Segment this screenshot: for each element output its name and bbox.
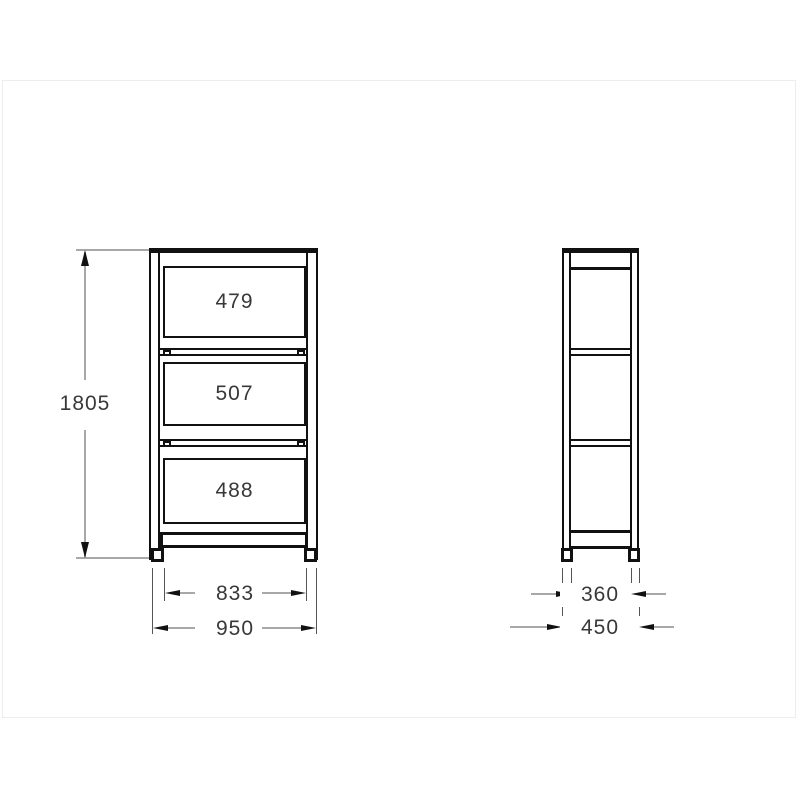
front-shelf-opening-1: 479 bbox=[163, 266, 306, 338]
front-top-beam bbox=[149, 248, 318, 253]
overall-width-dim-label: 950 bbox=[195, 617, 275, 641]
front-shelf-beam-1-right-clip bbox=[297, 350, 305, 356]
front-shelf-opening-3: 488 bbox=[163, 458, 306, 524]
front-shelf-beam-2 bbox=[160, 439, 308, 447]
drawing-canvas: 479 507 488 18 bbox=[0, 0, 800, 800]
overall-width-arrow-right-icon bbox=[301, 625, 316, 631]
shelf-gap-label-1: 479 bbox=[215, 290, 253, 314]
overall-width-arrow-left-icon bbox=[153, 625, 168, 631]
shelf-gap-label-3: 488 bbox=[215, 479, 253, 503]
height-arrow-down-icon bbox=[81, 542, 89, 558]
overall-depth-tail-left bbox=[510, 626, 547, 628]
inner-depth-tail-left bbox=[531, 593, 556, 595]
width-extension-inner-right bbox=[306, 568, 307, 601]
front-shelf-beam-2-right-clip bbox=[297, 441, 305, 447]
inner-depth-dim-label: 360 bbox=[560, 583, 640, 607]
front-left-foot bbox=[151, 548, 164, 562]
inner-depth-arrow-right-icon bbox=[631, 591, 646, 597]
side-rear-post bbox=[630, 248, 639, 560]
height-dim-line-lower bbox=[84, 430, 86, 558]
side-top-beam bbox=[562, 248, 639, 253]
inner-width-tail-right bbox=[262, 592, 291, 594]
side-front-foot bbox=[561, 548, 573, 562]
side-front-post bbox=[562, 248, 571, 560]
front-shelf-beam-2-left-clip bbox=[163, 441, 171, 447]
overall-depth-arrow-right-icon bbox=[639, 624, 654, 630]
inner-width-arrow-left-icon bbox=[165, 590, 180, 596]
side-bottom-beam bbox=[571, 530, 630, 549]
front-shelf-beam-1 bbox=[160, 348, 308, 356]
front-right-post bbox=[306, 248, 318, 560]
overall-depth-tail-right bbox=[654, 626, 674, 628]
front-right-foot bbox=[304, 548, 317, 562]
side-top-beam-underline bbox=[571, 267, 630, 270]
width-extension-outer-right bbox=[316, 568, 317, 634]
side-rear-foot bbox=[628, 548, 640, 562]
width-extension-inner-left bbox=[164, 568, 165, 601]
shelf-gap-label-2: 507 bbox=[215, 382, 253, 406]
front-left-post bbox=[149, 248, 160, 560]
front-shelf-opening-2: 507 bbox=[163, 362, 306, 426]
front-bottom-beam bbox=[160, 532, 308, 548]
side-shelf-beam-1 bbox=[571, 348, 630, 356]
height-dim-line-upper bbox=[84, 252, 86, 380]
inner-width-arrow-right-icon bbox=[291, 590, 306, 596]
front-shelf-beam-1-left-clip bbox=[163, 350, 171, 356]
overall-depth-dim-label: 450 bbox=[560, 616, 640, 640]
height-arrow-up-icon bbox=[81, 250, 89, 266]
overall-width-tail-right bbox=[262, 627, 301, 629]
height-dim-label: 1805 bbox=[25, 392, 145, 416]
inner-width-dim-label: 833 bbox=[195, 582, 275, 606]
inner-depth-tail-right bbox=[646, 593, 666, 595]
side-shelf-beam-2 bbox=[571, 439, 630, 447]
